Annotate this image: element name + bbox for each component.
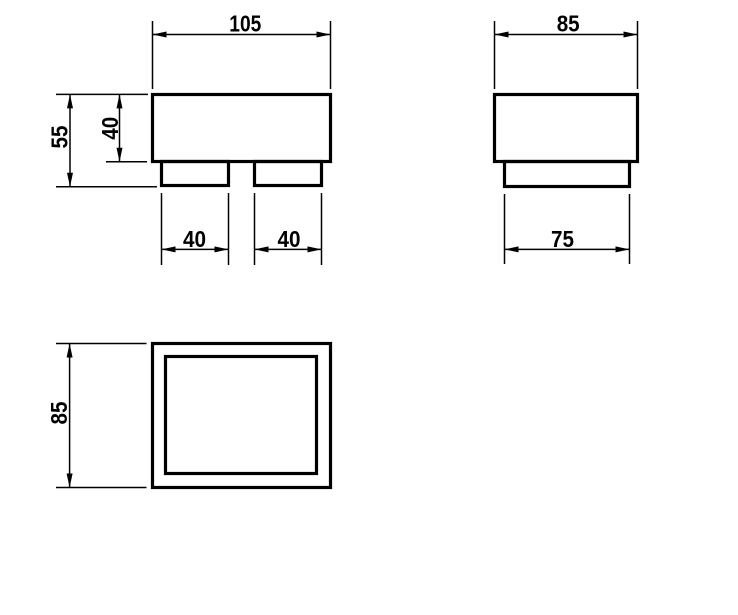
svg-text:75: 75 [551,226,574,252]
svg-text:40: 40 [183,226,206,252]
svg-text:55: 55 [47,125,73,148]
svg-text:85: 85 [557,11,580,37]
svg-text:40: 40 [278,226,301,252]
svg-text:40: 40 [97,117,123,140]
svg-text:105: 105 [229,11,261,37]
svg-text:85: 85 [46,401,72,424]
